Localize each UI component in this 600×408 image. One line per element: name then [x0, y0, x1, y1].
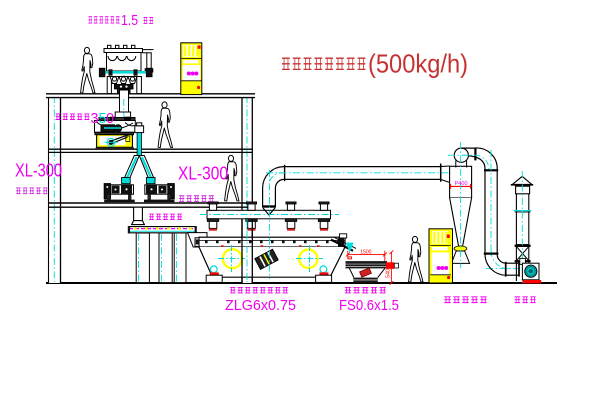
- svg-text:XL-300: XL-300: [15, 160, 62, 181]
- svg-text:ZLG6x0.75: ZLG6x0.75: [225, 297, 296, 314]
- svg-text:0: 0: [106, 111, 114, 127]
- svg-text:3: 3: [91, 111, 99, 127]
- svg-text:(500kg/h): (500kg/h): [368, 48, 468, 78]
- svg-text:P400: P400: [455, 181, 468, 187]
- svg-text:1500: 1500: [360, 249, 371, 255]
- svg-text:540: 540: [385, 269, 391, 278]
- svg-text:FS0.6x1.5: FS0.6x1.5: [339, 297, 399, 314]
- svg-text:XL-300: XL-300: [178, 163, 228, 184]
- svg-text:1.5: 1.5: [121, 12, 138, 29]
